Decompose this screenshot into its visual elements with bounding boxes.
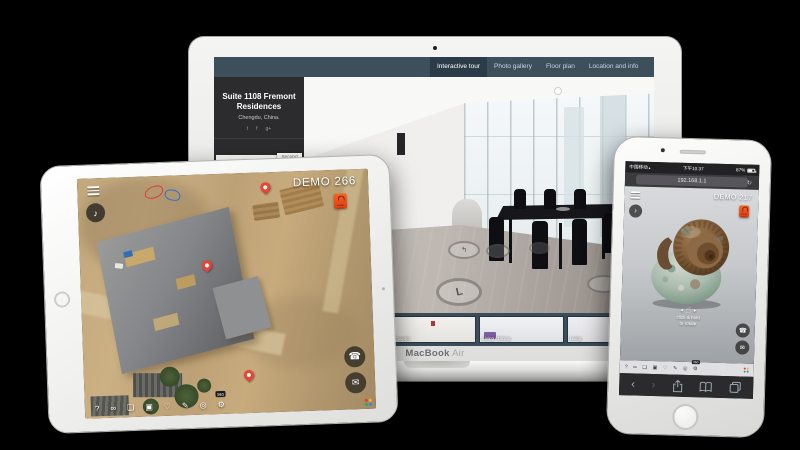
phone-icon: ☎: [348, 351, 361, 362]
email-button[interactable]: ✉: [735, 340, 749, 354]
tab-location-info[interactable]: Location and info: [582, 57, 646, 77]
aerial-map-view[interactable]: ♪ DEMO 266 ☎ ✉ ? ∞ ❏ ▣ ♡ ✎ ◎ ⚙360: [77, 169, 376, 419]
music-note-icon: ♪: [93, 208, 98, 218]
brand-dots-logo: [365, 399, 372, 406]
brand-dots-logo: [744, 368, 749, 373]
ipad-camera-dot: [382, 287, 385, 290]
webcam-dot: [433, 46, 437, 50]
share-icon[interactable]: [672, 379, 683, 392]
composite-scene: Interactive tour Photo gallery Floor pla…: [0, 0, 800, 450]
vr-goggles-icon[interactable]: ∞: [633, 364, 637, 370]
refresh-icon[interactable]: ↻: [747, 179, 752, 186]
clock-label: 下午10:37: [683, 165, 704, 172]
battery-icon: [747, 168, 755, 172]
help-icon[interactable]: ?: [95, 404, 100, 413]
safari-bottom-bar: ‹ ›: [619, 373, 754, 399]
sidebar-divider: [214, 138, 304, 139]
tabs-icon[interactable]: [729, 381, 741, 393]
mail-icon: ✉: [352, 377, 360, 388]
nav-ring[interactable]: ↰: [448, 241, 480, 259]
dining-chair: [572, 219, 587, 265]
red-bag-icon[interactable]: [334, 193, 348, 208]
phone-icon: ☎: [739, 326, 747, 334]
armchair: [452, 199, 482, 229]
iphone-device: 中国移动▴ 下午10:37 87% 192.168.1.1 ↻ ♪ DEMO 2…: [606, 136, 772, 438]
bookmarks-icon[interactable]: [699, 381, 712, 392]
music-note-icon: ♪: [634, 208, 637, 214]
googleplus-icon[interactable]: g+: [266, 126, 272, 132]
annotate-icon[interactable]: ✎: [673, 365, 678, 371]
menu-icon[interactable]: [87, 186, 99, 195]
dining-chair: [514, 189, 526, 209]
facebook-icon[interactable]: f: [256, 126, 257, 132]
help-icon[interactable]: ?: [625, 364, 628, 370]
nav-ring[interactable]: [529, 242, 550, 254]
carrier-label: 中国移动: [629, 164, 648, 170]
menu-icon[interactable]: [630, 191, 640, 198]
ipad-home-button[interactable]: [54, 291, 71, 308]
nav-ring[interactable]: ↶: [486, 244, 510, 258]
table-leg: [559, 223, 562, 269]
nav-ring[interactable]: L: [436, 278, 482, 306]
table-leg: [509, 219, 512, 263]
demo-label: DEMO 266: [293, 175, 357, 189]
iphone-camera-dot: [661, 148, 665, 152]
call-button[interactable]: ☎: [736, 323, 750, 337]
forward-button[interactable]: ›: [651, 379, 655, 390]
annotate-icon[interactable]: ✎: [182, 401, 189, 410]
back-button[interactable]: ‹: [631, 379, 635, 390]
dining-chair: [574, 189, 586, 209]
info-icon[interactable]: ◎: [683, 365, 688, 371]
social-share-row: t f g+: [214, 126, 304, 132]
info-icon[interactable]: ◎: [199, 401, 206, 410]
ceiling-light: [554, 87, 562, 95]
arrow-right-icon: ►: [693, 308, 697, 313]
iphone-home-button[interactable]: [672, 404, 699, 431]
macbook-lid-notch: [404, 361, 470, 368]
gallery-icon[interactable]: ❏: [642, 364, 647, 370]
scene-thumbnail[interactable]: Living / Dining: [479, 316, 563, 343]
twitter-icon[interactable]: t: [247, 126, 248, 132]
tab-photo-gallery[interactable]: Photo gallery: [487, 57, 539, 77]
badge-360: 360: [215, 391, 225, 397]
settings-gear-icon[interactable]: ⚙360: [217, 400, 224, 409]
iphone-screen: 中国移动▴ 下午10:37 87% 192.168.1.1 ↻ ♪ DEMO 2…: [619, 161, 759, 399]
tour-navbar: Interactive tour Photo gallery Floor pla…: [214, 57, 654, 77]
settings-gear-icon[interactable]: ⚙360: [693, 366, 698, 372]
demo-label: DEMO 217: [714, 194, 753, 202]
wifi-icon: ▴: [649, 165, 651, 169]
gallery-icon[interactable]: ❏: [127, 403, 134, 412]
table-bowl: [556, 207, 570, 211]
camera-icon[interactable]: ▣: [145, 402, 153, 411]
vr-goggles-icon[interactable]: ∞: [110, 404, 116, 413]
ipad-device: ♪ DEMO 266 ☎ ✉ ? ∞ ❏ ▣ ♡ ✎ ◎ ⚙360: [39, 154, 398, 434]
hand-pointer-icon: ☝: [683, 305, 693, 315]
wall-art: [397, 133, 405, 155]
heart-icon[interactable]: ♡: [164, 402, 171, 411]
camera-icon[interactable]: ▣: [652, 365, 657, 371]
scene-thumbnail[interactable]: Powder: [392, 316, 476, 343]
url-field[interactable]: 192.168.1.1: [636, 174, 748, 187]
tab-interactive-tour[interactable]: Interactive tour: [430, 57, 487, 77]
badge-360: 360: [692, 360, 699, 364]
heart-icon[interactable]: ♡: [663, 365, 668, 371]
ram-horn-sculpture[interactable]: [636, 213, 743, 312]
mail-icon: ✉: [740, 344, 745, 351]
property-title: Suite 1108 Fremont Residences: [220, 92, 298, 113]
object-viewer[interactable]: ♪ DEMO 217: [620, 186, 759, 364]
dining-chair: [544, 189, 556, 209]
battery-label: 87%: [736, 167, 745, 172]
iphone-speaker: [680, 150, 706, 155]
tab-floor-plan[interactable]: Floor plan: [539, 57, 582, 77]
property-location: Chengdu, China.: [214, 115, 304, 121]
rotate-hint: ◄☝► click & hold to rotate: [621, 304, 756, 329]
